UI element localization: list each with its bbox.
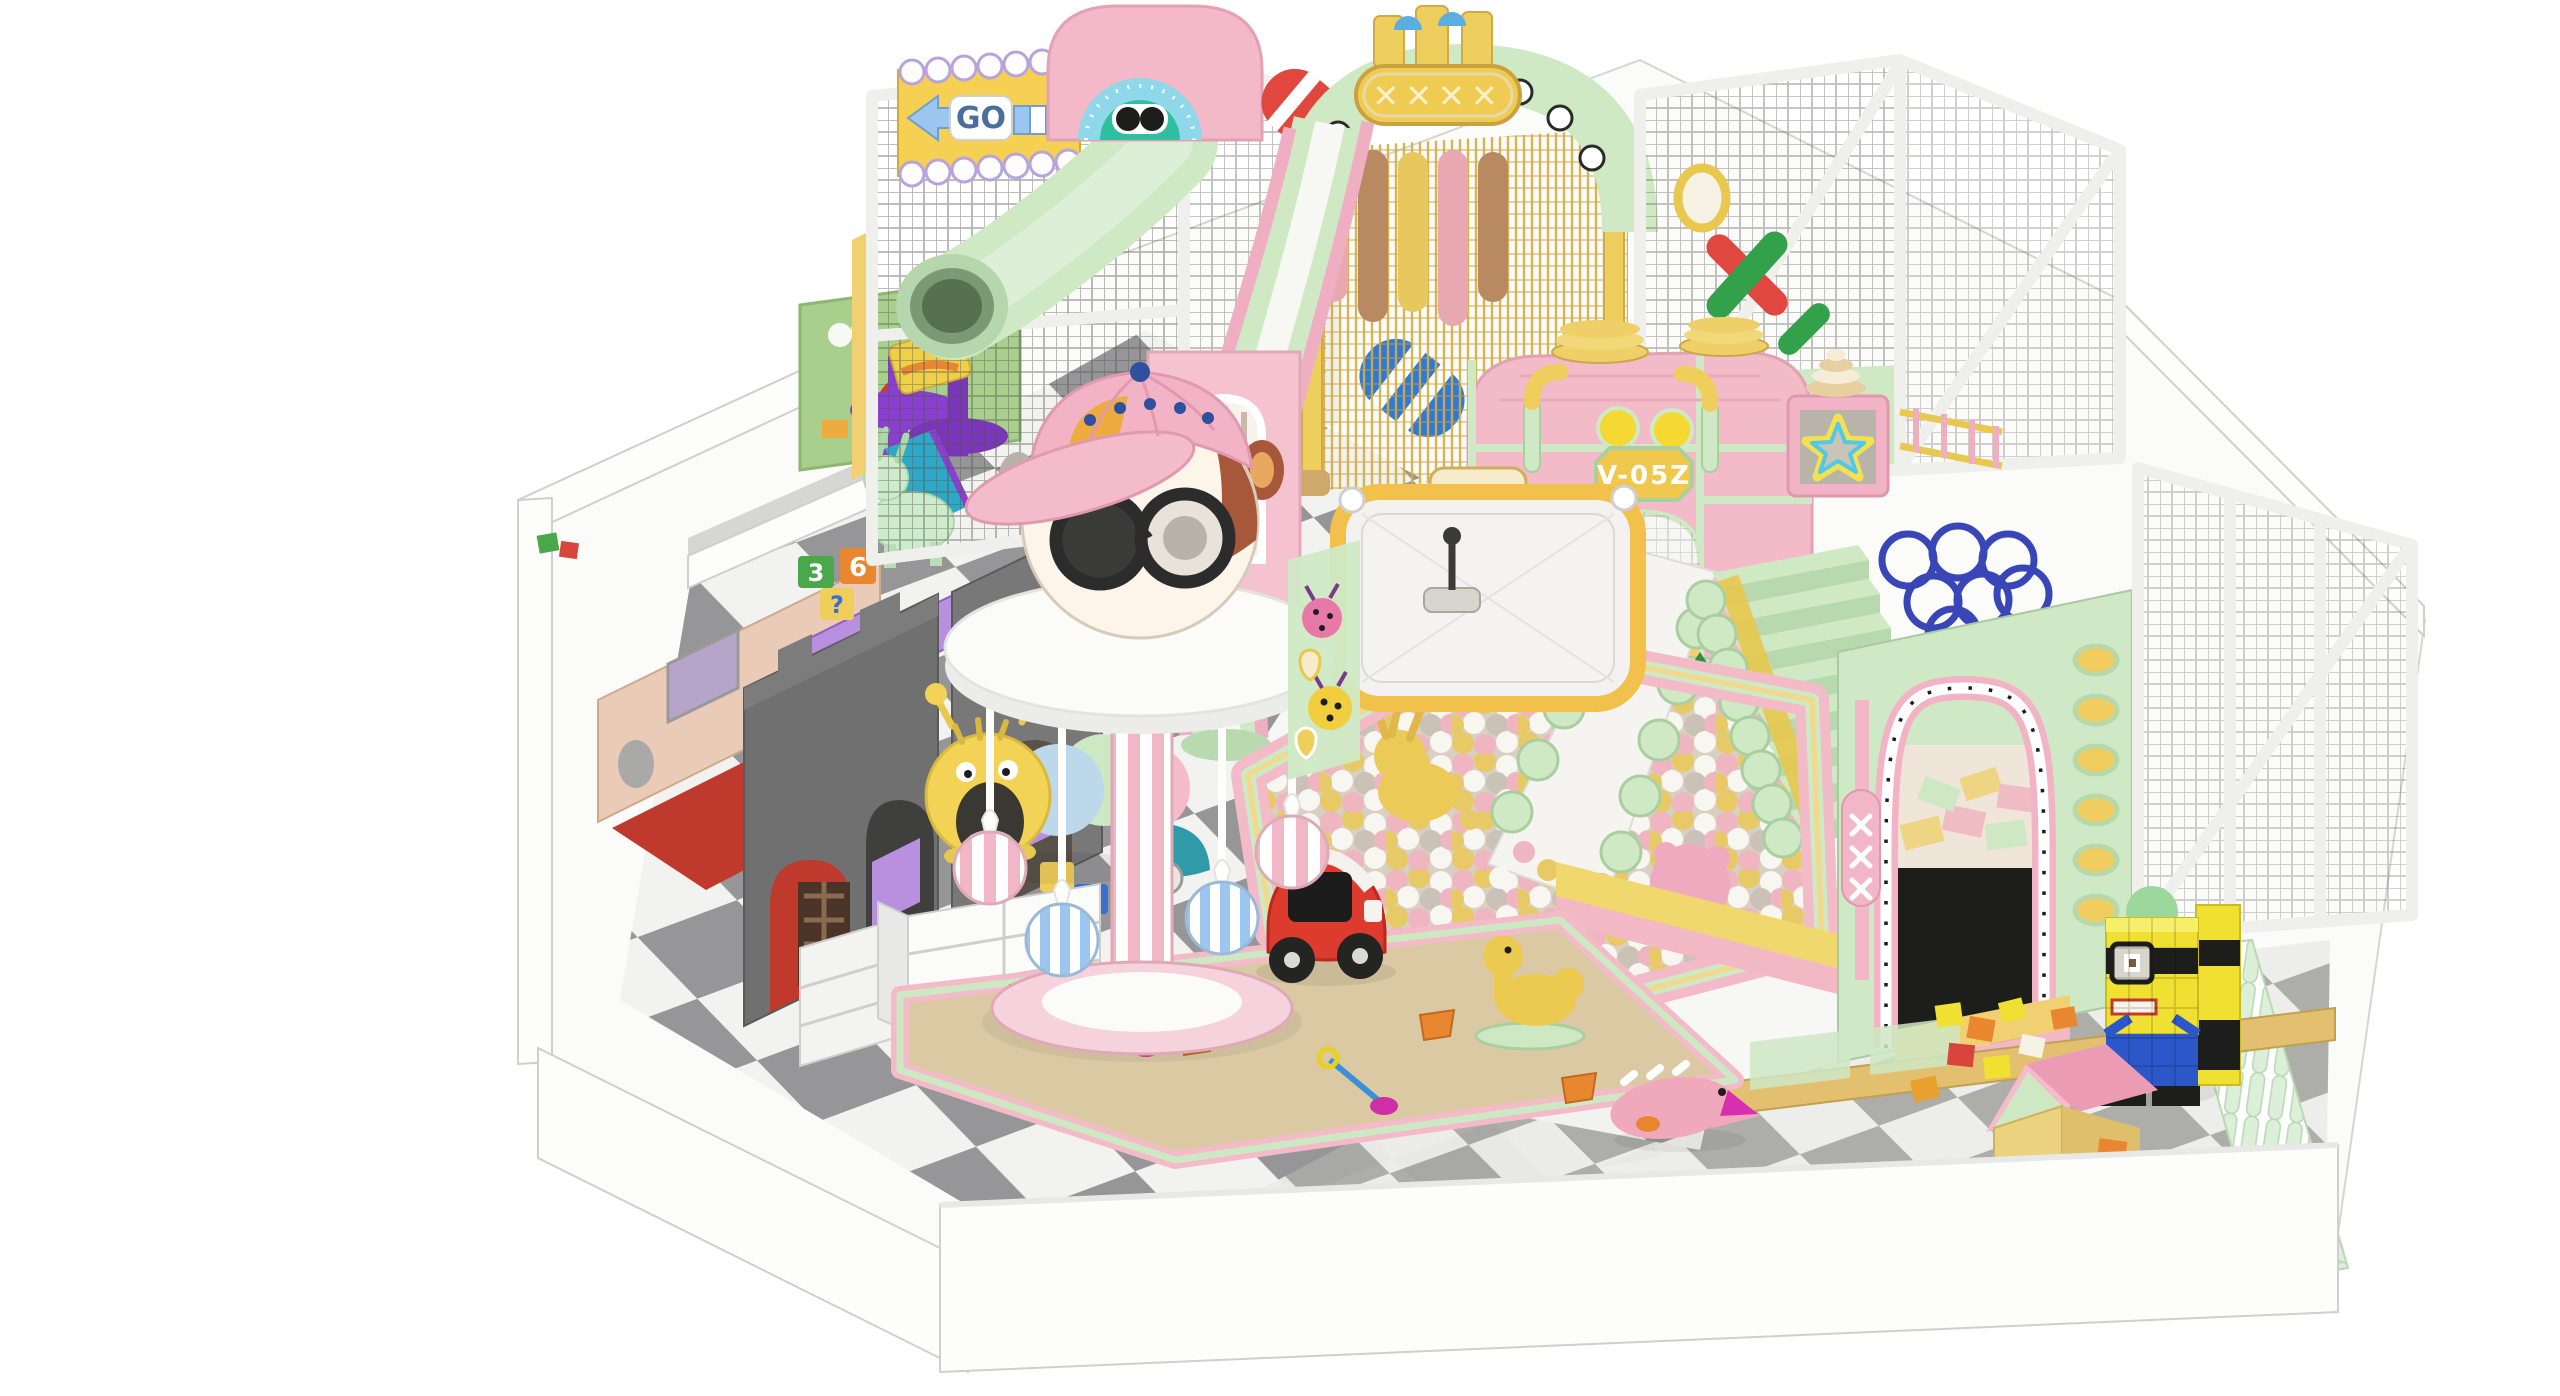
interactive-screen	[1338, 468, 1638, 704]
monster-eye	[1116, 107, 1140, 131]
playground-render: ? 3 6 ? GO	[0, 0, 2560, 1396]
gate-plaque-label: ✕✕✕✕	[1372, 77, 1503, 115]
porthole-ring	[1678, 168, 1726, 228]
svg-text:?: ?	[830, 591, 844, 619]
train-graphic	[822, 420, 848, 438]
gate-chimneys	[1374, 6, 1492, 68]
ladybug-panel	[1288, 540, 1360, 780]
monster-eye	[1140, 107, 1164, 131]
svg-text:3: 3	[808, 559, 825, 587]
yellow-button	[1598, 408, 1638, 448]
yellow-button	[1652, 410, 1692, 450]
right-mesh-cage	[2138, 468, 2412, 935]
oval-window	[618, 740, 654, 788]
go-sign-label: GO	[956, 101, 1006, 136]
svg-text:6: 6	[849, 553, 867, 583]
striped-column	[1112, 700, 1172, 1000]
scene-canvas: ? 3 6 ? GO	[0, 0, 2560, 1396]
monster-head-arch	[1048, 6, 1262, 140]
